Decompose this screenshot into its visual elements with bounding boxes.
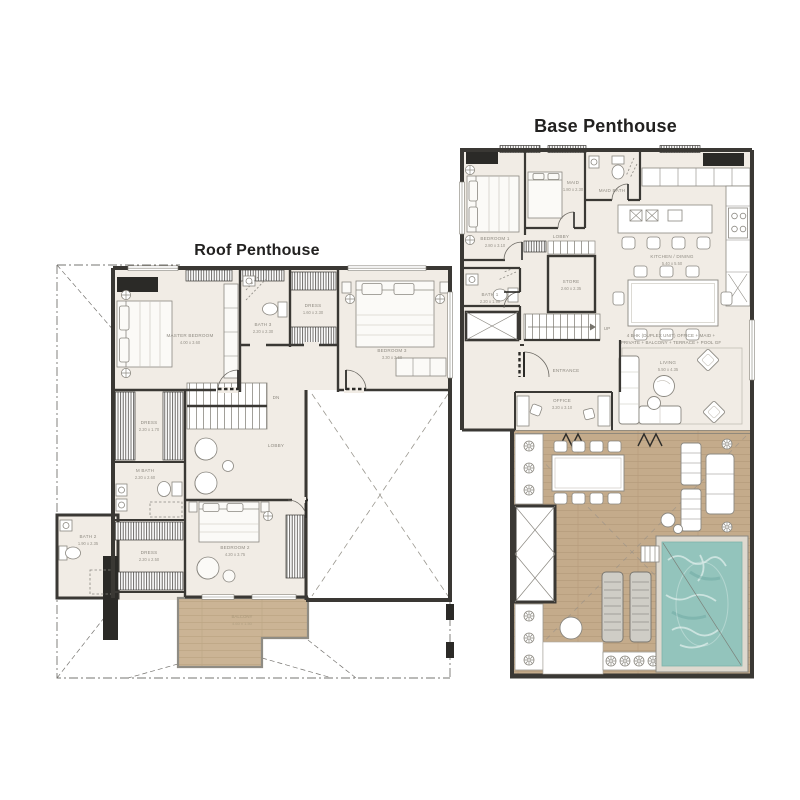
round-table (560, 617, 582, 639)
roof-penthouse-plan: BALCONY 4.60 x 1.50 (57, 265, 454, 678)
room-dims-dress-master: 2.20 x 1.70 (139, 427, 160, 432)
wall-mass (703, 153, 744, 166)
room-dims-bedroom1: 2.80 x 3.10 (485, 243, 506, 248)
room-label-bedroom3: BEDROOM 3 (377, 348, 407, 353)
base-penthouse-plan: BEDROOM 1 2.80 x 3.10 MAID 1.80 x 2.30 M… (460, 146, 755, 679)
room-label-living: LIVING (660, 360, 676, 365)
room-dims-bath2: 1.90 x 2.35 (78, 541, 99, 546)
ceiling-light-icon (465, 165, 474, 174)
terrace-white-panel (543, 642, 603, 674)
room-label-dress2: DRESS (141, 550, 158, 555)
base-plan-title: Base Penthouse (498, 116, 713, 137)
terrace-shaft (515, 506, 555, 602)
planter-row (603, 652, 659, 670)
room-dims-dress3: 1.60 x 2.30 (303, 310, 324, 315)
double-height-void (308, 390, 452, 600)
bedroom1 (467, 176, 519, 232)
room-dims-bedroom2: 4.20 x 3.75 (225, 552, 246, 557)
room-dims-bedroom3: 3.30 x 3.60 (382, 355, 403, 360)
room-label-bath3: BATH 3 (255, 322, 272, 327)
room-label-bedroom2: BEDROOM 2 (220, 545, 250, 550)
ceiling-light-icon (121, 290, 130, 299)
pool (641, 536, 748, 672)
room-label-store: STORE (563, 279, 580, 284)
ceiling-light-icon (465, 235, 474, 244)
room-label-base-lobby: LOBBY (553, 234, 569, 239)
room-dims-office: 3.20 x 3.10 (552, 405, 573, 410)
ceiling-light-icon (435, 294, 444, 303)
mini-stair (548, 241, 595, 254)
wall-mass (103, 556, 118, 640)
room-label-maid: MAID (567, 180, 580, 185)
wall-stub (446, 604, 454, 620)
room-label-kitchen-dining: KITCHEN / DINING (650, 254, 693, 259)
wall-mass (117, 277, 158, 292)
wall-mass (466, 152, 498, 164)
room-label-maid-bath: MAID BATH (599, 188, 625, 193)
room-dims-kitchen-dining: 5.40 x 5.50 (662, 261, 683, 266)
room-dims-bath1: 2.20 x 1.90 (480, 299, 501, 304)
elevator (466, 312, 518, 340)
ceiling-light-icon (263, 511, 272, 520)
roof-plan-title: Roof Penthouse (152, 242, 362, 260)
ceiling-light-icon (121, 368, 130, 377)
room-label-entrance: ENTRANCE (553, 368, 580, 373)
room-dims-m-bath: 2.20 x 2.60 (135, 475, 156, 480)
room-label-m-bath: M BATH (136, 468, 154, 473)
ceiling-light-icon (345, 294, 354, 303)
room-dims-store: 2.60 x 2.35 (561, 286, 582, 291)
room-label-master-bedroom: MASTER BEDROOM (167, 333, 214, 338)
room-label-dress3: DRESS (305, 303, 322, 308)
room-label-bath1: BATH 1 (482, 292, 499, 297)
wall-stub (446, 642, 454, 658)
room-dims-bath3: 2.20 x 2.30 (253, 329, 274, 334)
room-label-office: OFFICE (553, 398, 571, 403)
room-dims-balcony: 4.60 x 1.50 (232, 621, 253, 626)
room-dims-living: 5.50 x 4.35 (658, 367, 679, 372)
room-label-bath2: BATH 2 (80, 534, 97, 539)
room-label-dress-master: DRESS (141, 420, 158, 425)
stairs-dn-label: DN (273, 395, 280, 400)
room-label-roof-lobby: LOBBY (268, 443, 284, 448)
stairs-up-label: UP (604, 326, 610, 331)
floorplan-sheet: BALCONY 4.60 x 1.50 (0, 0, 800, 800)
roof-balcony-deck: BALCONY 4.60 x 1.50 (178, 598, 308, 667)
maid-room (528, 172, 562, 218)
room-dims-master-bedroom: 4.00 x 3.60 (180, 340, 201, 345)
store-room (548, 256, 595, 312)
pool-ladder (641, 546, 659, 562)
unit-annotation-line2: PRIVATE + BALCONY + TERRACE + POOL GF (621, 340, 722, 345)
unit-annotation-line1: 4 BHK (DUPLEX UNIT) OFFICE + MAID + (627, 333, 716, 338)
room-dims-dress2: 2.20 x 2.50 (139, 557, 160, 562)
room-dims-maid: 1.80 x 2.30 (563, 187, 584, 192)
room-label-bedroom1: BEDROOM 1 (480, 236, 510, 241)
base-stairs (524, 314, 600, 340)
room-label-balcony: BALCONY (232, 614, 253, 619)
